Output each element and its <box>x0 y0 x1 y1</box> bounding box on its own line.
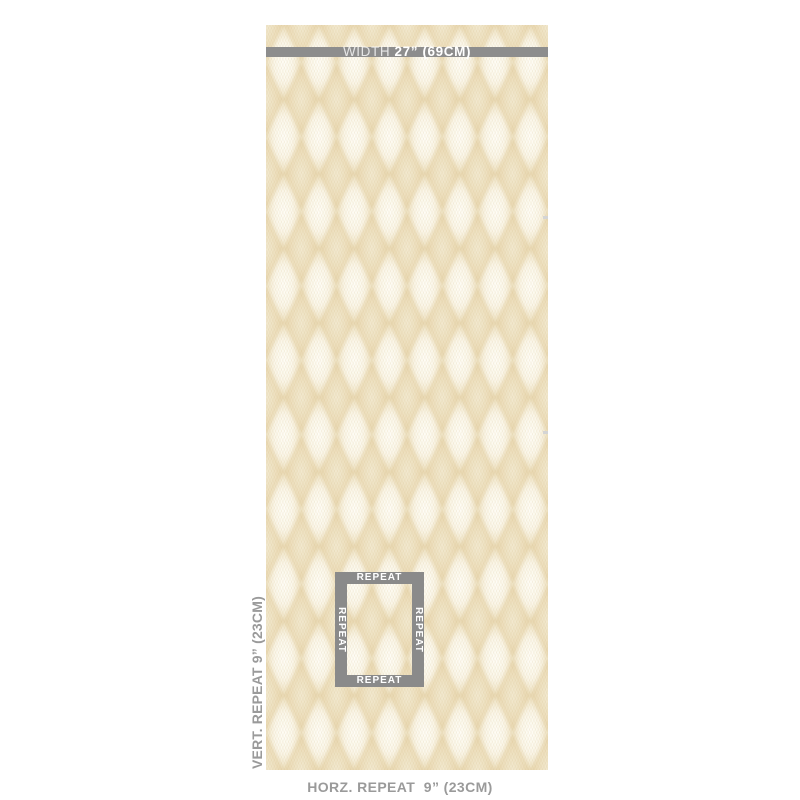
repeat-label-top: REPEAT <box>335 572 424 584</box>
wallpaper-roll: WIDTH 27” (69CM) REPEAT REPEAT REPEAT RE… <box>266 25 548 770</box>
horizontal-repeat-label: HORZ. REPEAT 9” (23CM) <box>0 779 800 795</box>
pattern-repeat-box: REPEAT REPEAT REPEAT REPEAT <box>335 572 424 687</box>
width-dimension-bar: WIDTH 27” (69CM) <box>266 47 548 57</box>
width-value: 27” (69CM) <box>395 47 472 57</box>
wallpaper-dimension-diagram: WIDTH 27” (69CM) REPEAT REPEAT REPEAT RE… <box>0 0 800 800</box>
repeat-box-frame <box>335 572 424 687</box>
repeat-label-left: REPEAT <box>335 572 347 687</box>
repeat-label-right: REPEAT <box>412 572 424 687</box>
width-label: WIDTH <box>343 47 395 57</box>
repeat-edge-tick <box>543 431 548 434</box>
vertical-repeat-label: VERT. REPEAT 9” (23CM) <box>249 596 265 769</box>
repeat-edge-tick <box>543 216 548 219</box>
repeat-label-bottom: REPEAT <box>335 675 424 687</box>
